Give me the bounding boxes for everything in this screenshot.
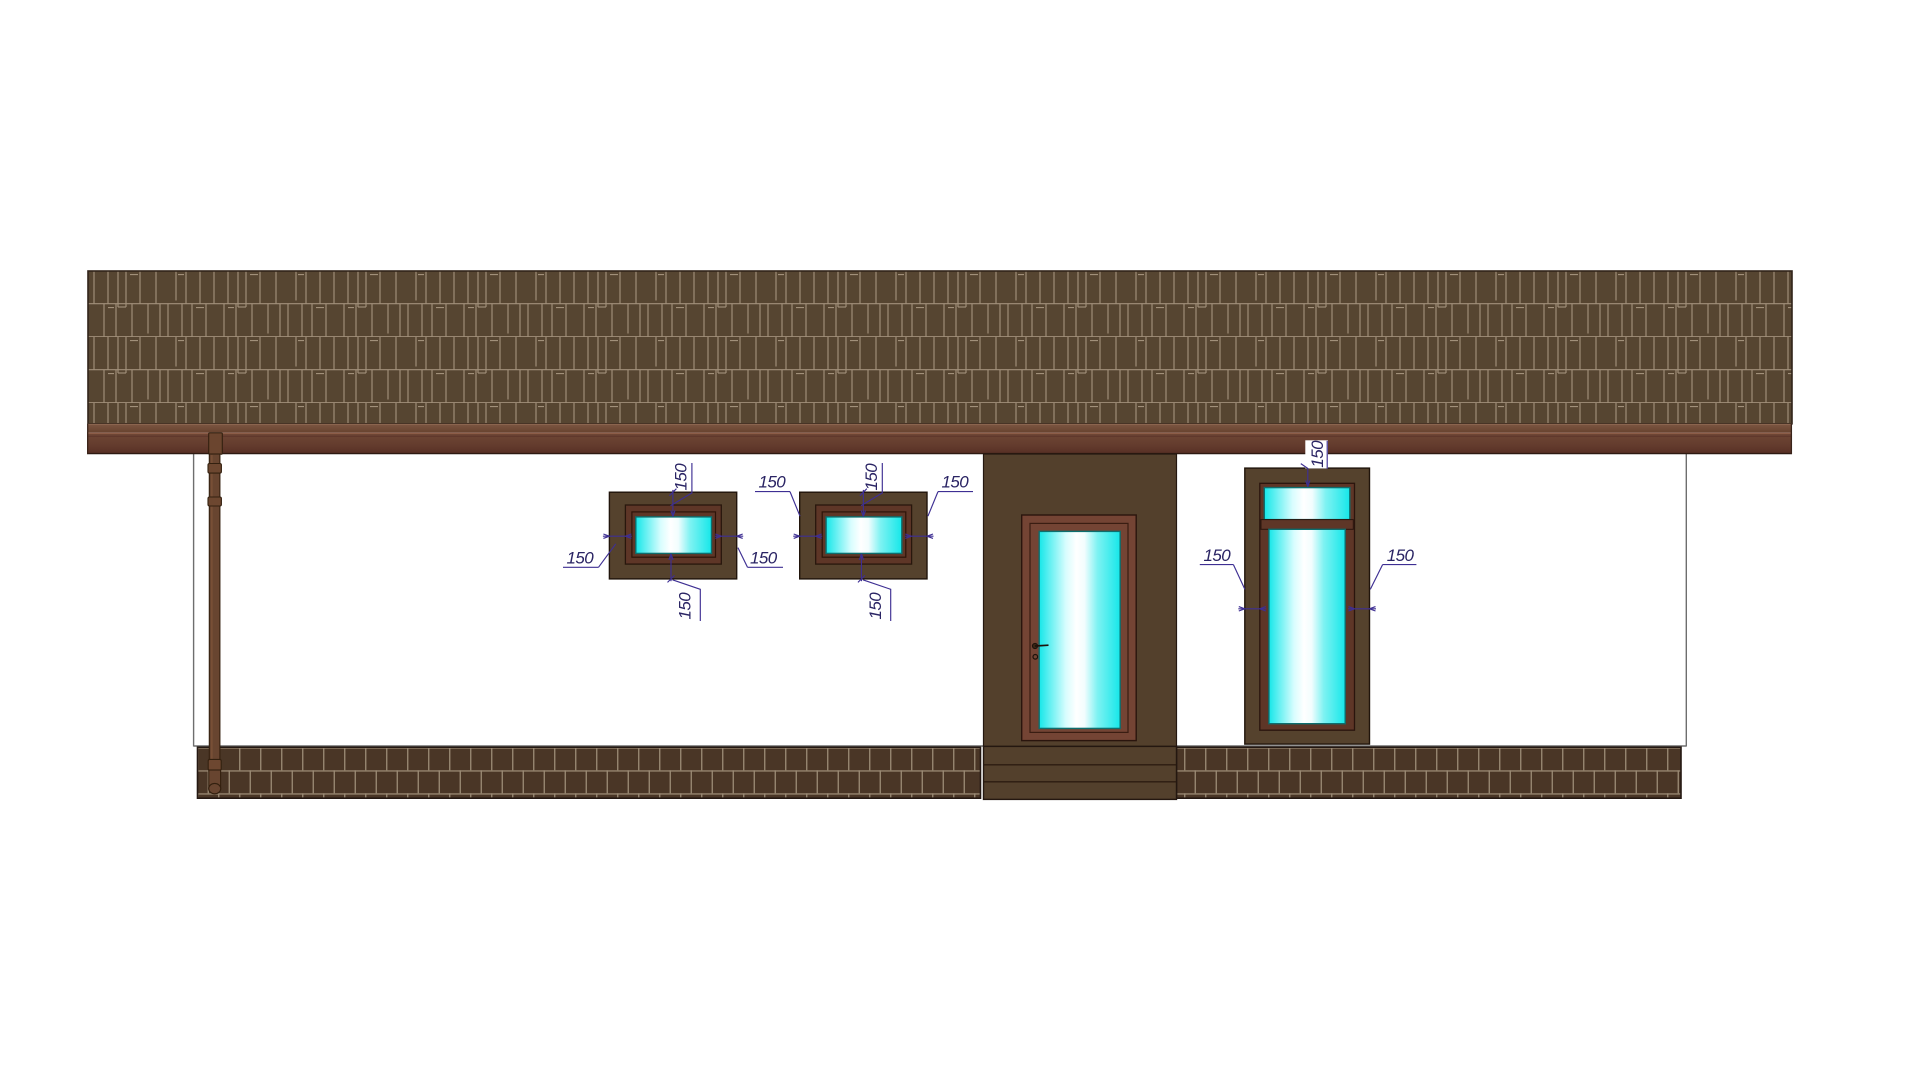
svg-text:150: 150 bbox=[567, 549, 595, 568]
svg-text:150: 150 bbox=[862, 463, 881, 491]
svg-text:150: 150 bbox=[759, 473, 787, 492]
svg-text:150: 150 bbox=[672, 463, 691, 491]
svg-text:150: 150 bbox=[1387, 546, 1415, 565]
svg-text:150: 150 bbox=[750, 549, 778, 568]
svg-text:150: 150 bbox=[676, 592, 695, 620]
svg-text:150: 150 bbox=[1308, 440, 1327, 468]
svg-text:150: 150 bbox=[1204, 546, 1232, 565]
svg-text:150: 150 bbox=[866, 592, 885, 620]
svg-text:150: 150 bbox=[942, 473, 970, 492]
